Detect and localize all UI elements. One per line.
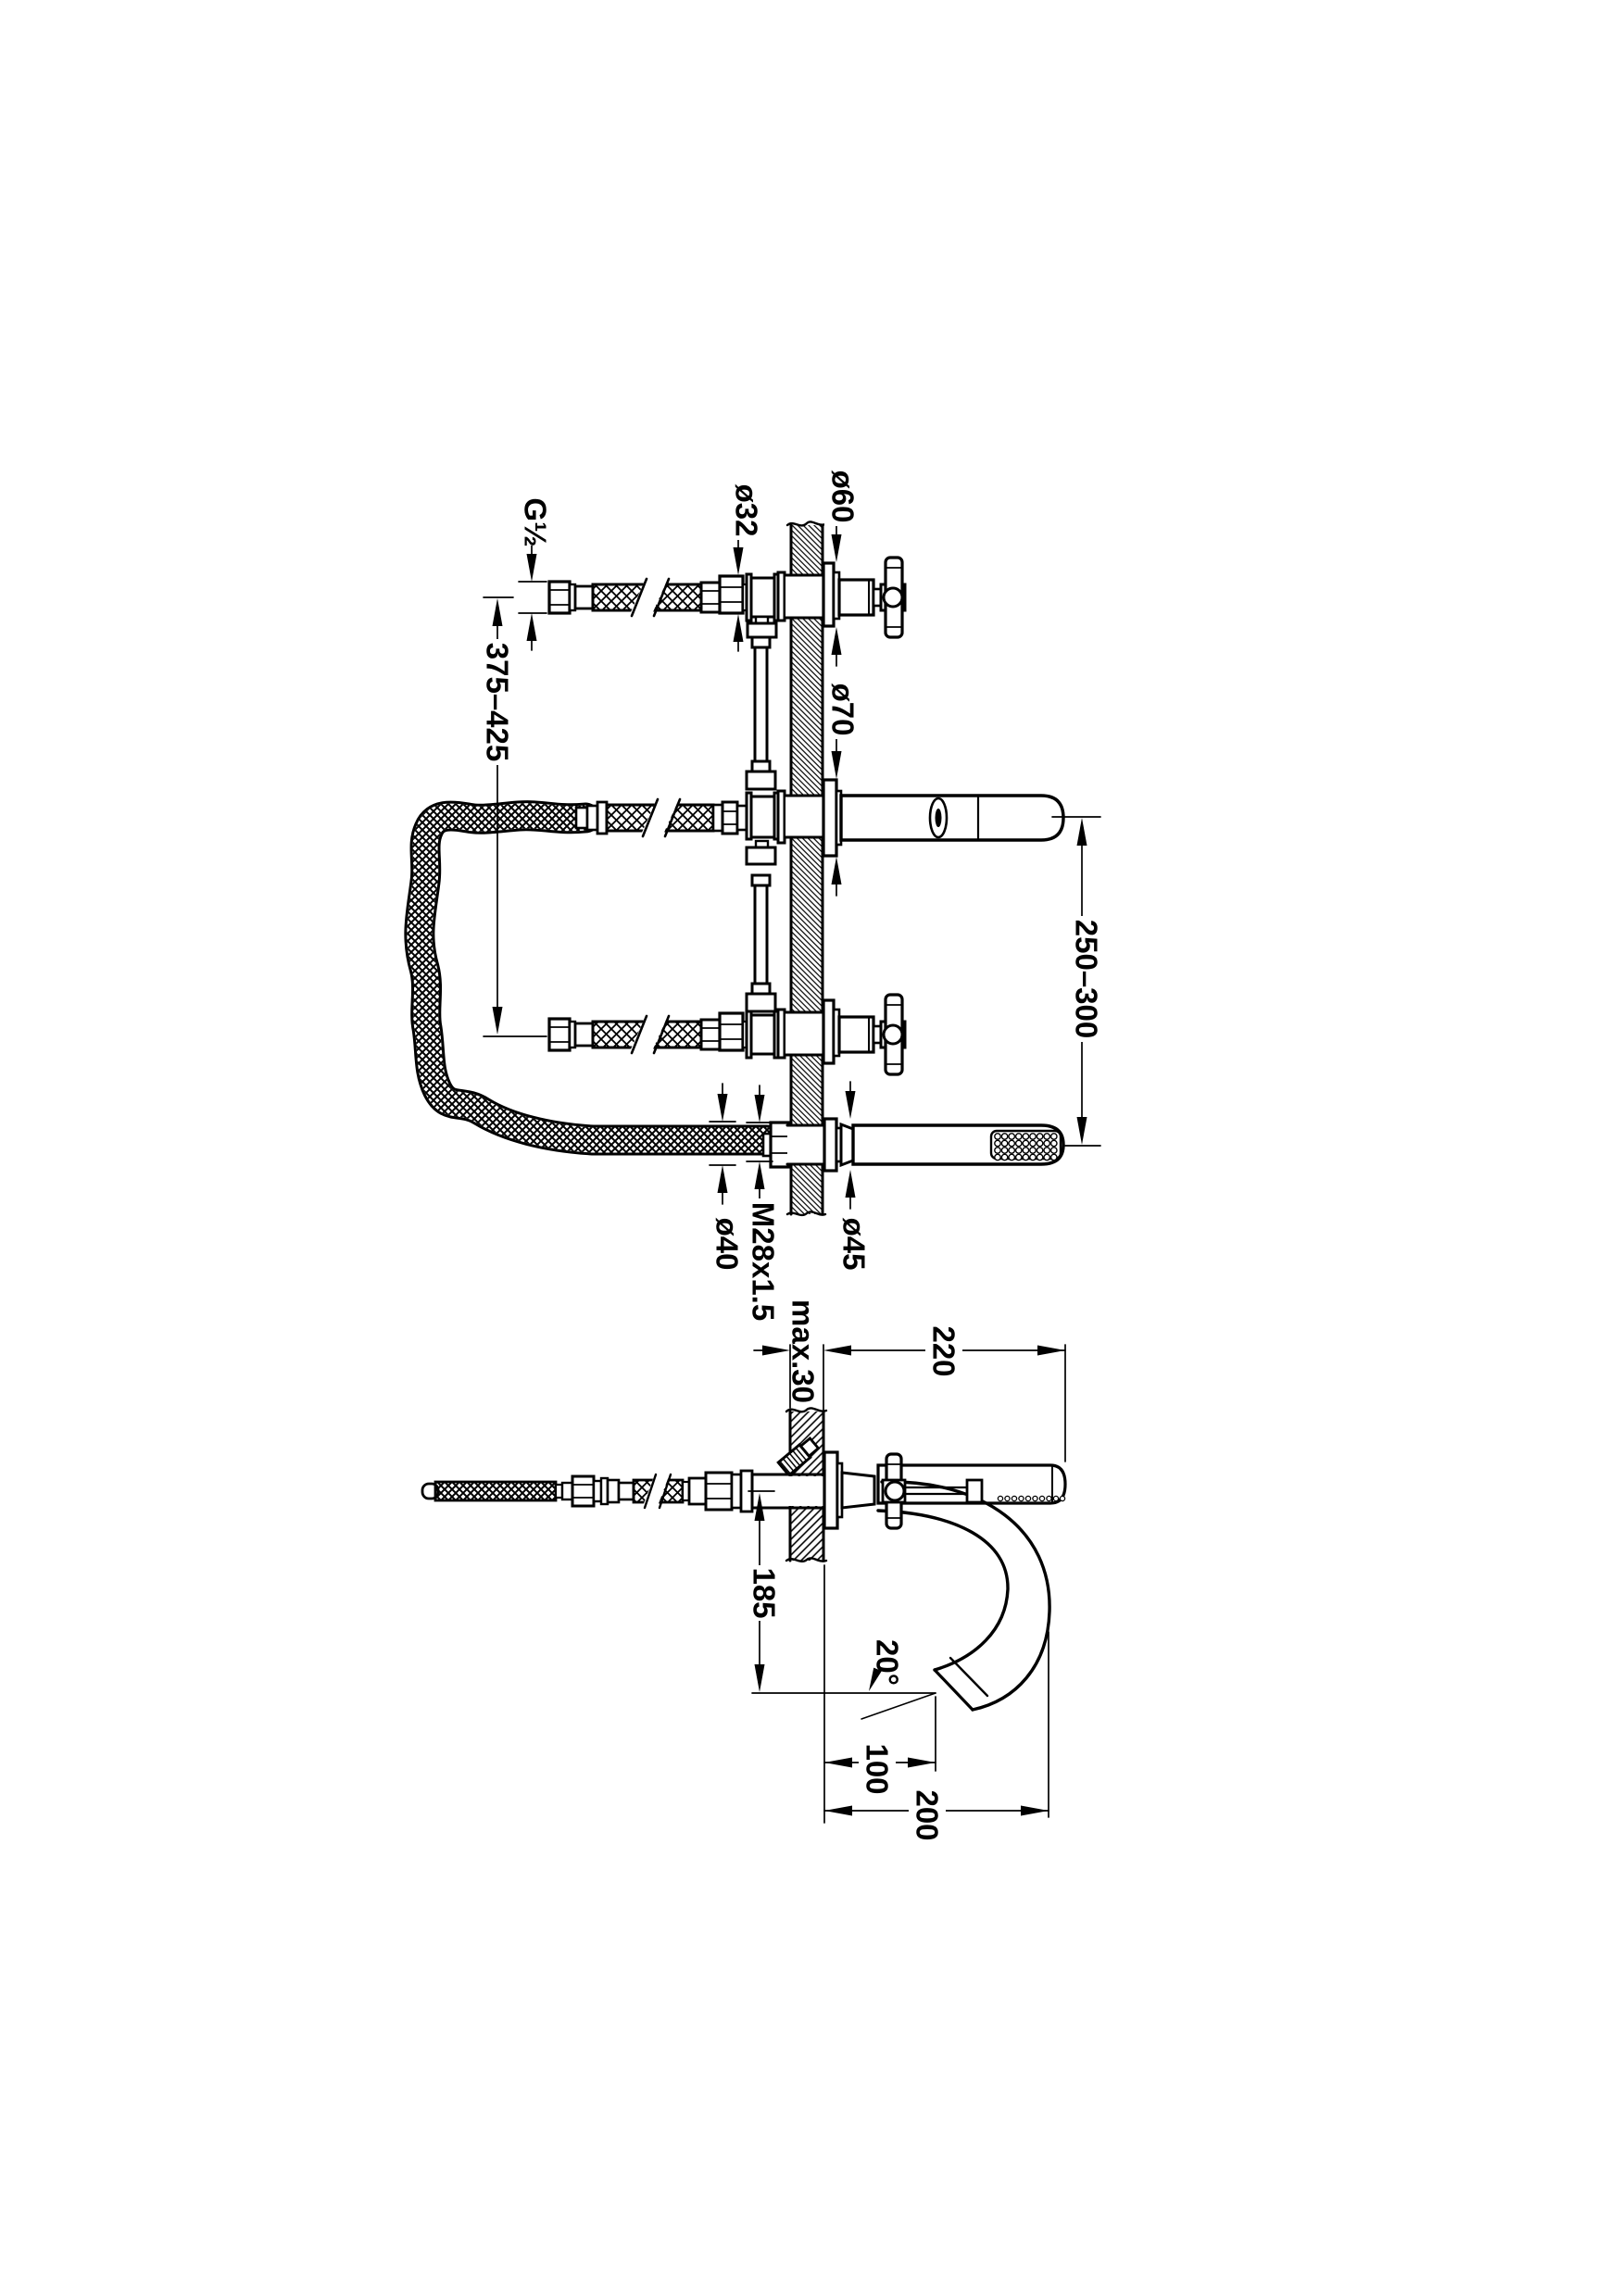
- angle-line: [861, 1693, 936, 1719]
- rosette-side: [824, 1452, 837, 1528]
- side-view: max.30 220 185: [422, 1299, 1065, 1843]
- front-view: G½ ø32 ø60: [420, 467, 1105, 1324]
- dimension-20deg: 20°: [861, 1639, 936, 1719]
- supply-hose-middle: [576, 799, 747, 836]
- dimension-label-220: 220: [926, 1325, 961, 1376]
- wall-front: [787, 521, 825, 1215]
- dimension-185: 185: [746, 1491, 936, 1693]
- dimension-label-dia70: ø70: [825, 684, 860, 736]
- dia32-nut: [720, 576, 743, 613]
- dimension-label-200: 200: [910, 1789, 944, 1840]
- connecting-pipe-lower: [747, 875, 775, 1011]
- wall-break-edge-top: [786, 1408, 826, 1411]
- handshower-assembly: [763, 1119, 1063, 1171]
- valve-cone: [842, 1473, 874, 1508]
- dimension-label-250-300: 250–300: [1069, 920, 1103, 1038]
- wall-break-edge-top: [787, 521, 825, 525]
- dimension-220: 220: [851, 1324, 1065, 1462]
- dimension-label-g-half: G½: [518, 497, 552, 546]
- dimension-dia40: ø40: [709, 1084, 746, 1273]
- cold-valve-assembly: [549, 995, 905, 1074]
- g-half-nut: [549, 1019, 570, 1050]
- dimension-100: 100: [824, 1565, 936, 1823]
- spout-tube: [841, 796, 1063, 840]
- dimension-dia45: ø45: [836, 1082, 873, 1273]
- spout-rosette: [823, 780, 836, 856]
- shower-hose: [420, 816, 767, 1140]
- dimension-label-375-425: 375–425: [480, 643, 514, 761]
- dimension-g-half: G½: [517, 497, 554, 650]
- valve-rosette: [823, 1000, 834, 1063]
- dimension-250-300: 250–300: [1052, 817, 1105, 1146]
- dimension-label-dia40: ø40: [710, 1218, 744, 1271]
- dimension-label-dia32: ø32: [729, 484, 763, 537]
- dimension-200: 200: [824, 1632, 1049, 1843]
- g-half-nut: [549, 582, 570, 613]
- m28-nut: [771, 1123, 790, 1167]
- dimension-label-100: 100: [860, 1743, 894, 1794]
- hot-valve-assembly: [549, 558, 905, 637]
- dimension-label-m28: M28x1.5: [746, 1202, 780, 1321]
- dimension-label-dia45: ø45: [836, 1218, 871, 1271]
- drawing-sheet: G½ ø32 ø60: [0, 0, 1621, 2296]
- shower-hose-side: [435, 1482, 556, 1500]
- dimension-label-max30: max.30: [785, 1299, 820, 1403]
- supply-hose-bottom: [549, 1013, 748, 1053]
- handshower-rosette: [824, 1119, 836, 1171]
- technical-drawing: G½ ø32 ø60: [0, 0, 1621, 2296]
- spray-holes: [995, 1134, 1057, 1161]
- dimension-label-20deg: 20°: [870, 1639, 904, 1686]
- connecting-pipe-upper: [747, 637, 775, 789]
- side-view-dimensions: max.30 220 185: [746, 1299, 1065, 1843]
- diverter-knob: [967, 1480, 982, 1502]
- spout-outer-edge: [882, 1482, 1049, 1710]
- dimension-label-dia60: ø60: [825, 470, 860, 523]
- dimension-label-185: 185: [747, 1567, 781, 1618]
- supply-hose-top: [549, 576, 748, 616]
- valve-rosette: [823, 563, 834, 626]
- handshower-holder: [841, 1124, 853, 1165]
